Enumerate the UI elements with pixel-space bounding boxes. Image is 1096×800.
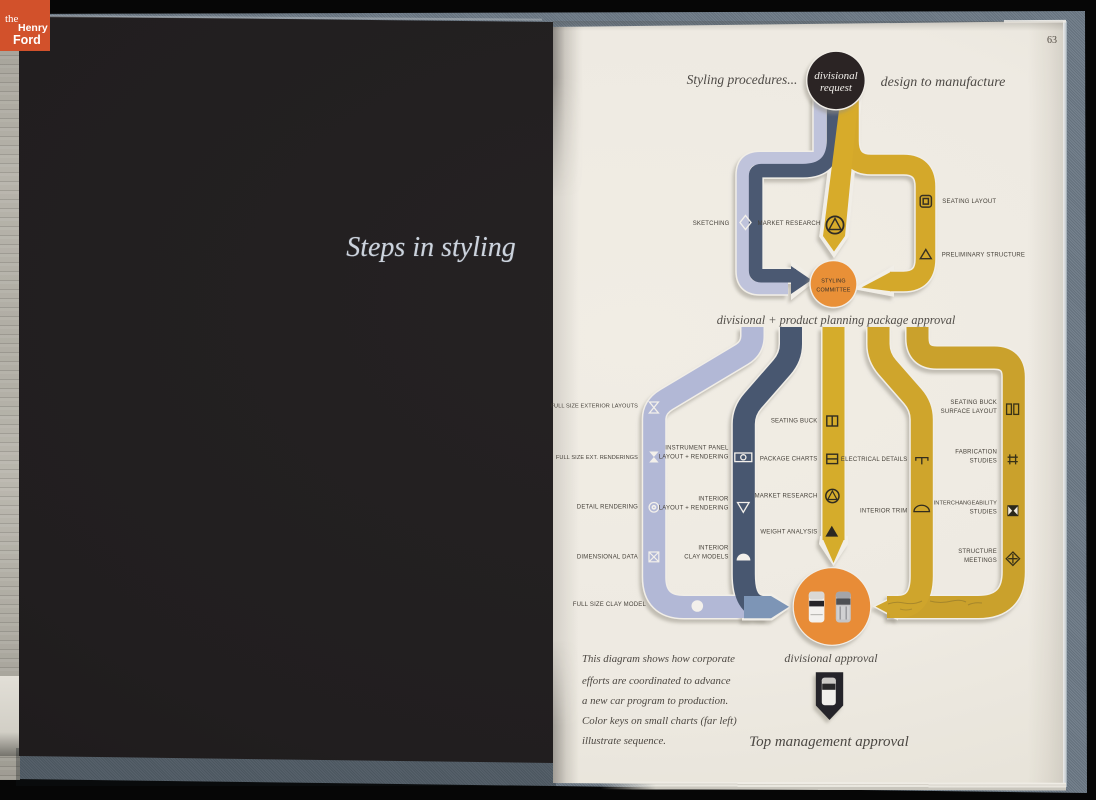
svg-text:divisional approval: divisional approval [784,651,878,665]
svg-text:MEETINGS: MEETINGS [964,558,997,564]
svg-text:a new car program to productio: a new car program to production. [582,695,728,707]
svg-text:STUDIES: STUDIES [970,510,997,516]
svg-text:FULL SIZE CLAY MODEL: FULL SIZE CLAY MODEL [573,602,647,608]
svg-text:Top management approval: Top management approval [749,734,909,750]
svg-text:MARKET RESEARCH: MARKET RESEARCH [758,221,821,227]
svg-text:efforts are coordinated to adv: efforts are coordinated to advance [582,675,731,687]
svg-text:INSTRUMENT PANEL: INSTRUMENT PANEL [665,446,729,452]
svg-text:SEATING BUCK: SEATING BUCK [950,400,997,406]
svg-text:FULL SIZE EXT. RENDERINGS: FULL SIZE EXT. RENDERINGS [556,455,638,461]
svg-text:63: 63 [1047,35,1057,46]
svg-text:STYLING: STYLING [821,279,845,285]
svg-text:INTERIOR: INTERIOR [698,545,729,551]
svg-text:COMMITTEE: COMMITTEE [816,288,850,294]
svg-text:ELECTRICAL DETAILS: ELECTRICAL DETAILS [841,457,908,463]
svg-text:SEATING LAYOUT: SEATING LAYOUT [942,199,996,205]
svg-text:SKETCHING: SKETCHING [693,221,730,227]
svg-text:INTERCHANGEABILITY: INTERCHANGEABILITY [934,501,998,507]
svg-text:STUDIES: STUDIES [970,459,997,465]
svg-text:PRELIMINARY STRUCTURE: PRELIMINARY STRUCTURE [942,253,1025,259]
svg-text:Styling procedures...: Styling procedures... [687,72,798,87]
svg-text:This diagram shows how corpora: This diagram shows how corporate [582,653,735,665]
svg-text:INTERIOR TRIM: INTERIOR TRIM [860,509,908,515]
svg-text:divisional + product planning: divisional + product planning package ap… [717,313,956,327]
svg-text:WEIGHT ANALYSIS: WEIGHT ANALYSIS [760,530,817,536]
svg-text:LAYOUT + RENDERING: LAYOUT + RENDERING [659,455,729,461]
svg-text:illustrate sequence.: illustrate sequence. [582,735,666,747]
svg-text:SEATING BUCK: SEATING BUCK [771,418,818,424]
svg-text:design to manufacture: design to manufacture [881,75,1006,90]
svg-text:DETAIL RENDERING: DETAIL RENDERING [577,505,638,511]
svg-text:SURFACE LAYOUT: SURFACE LAYOUT [941,409,998,415]
svg-text:STRUCTURE: STRUCTURE [958,549,997,555]
svg-text:CLAY MODELS: CLAY MODELS [684,554,728,560]
svg-text:PACKAGE CHARTS: PACKAGE CHARTS [760,457,818,463]
svg-text:Color keys on small charts (fa: Color keys on small charts (far left) [582,715,737,727]
svg-text:request: request [820,82,853,94]
svg-text:INTERIOR: INTERIOR [698,496,729,502]
svg-text:divisional: divisional [814,70,857,82]
svg-text:DIMENSIONAL DATA: DIMENSIONAL DATA [577,554,638,560]
svg-text:LAYOUT + RENDERING: LAYOUT + RENDERING [659,506,729,512]
svg-text:MARKET RESEARCH: MARKET RESEARCH [755,494,818,500]
svg-text:FULL SIZE EXTERIOR LAYOUTS: FULL SIZE EXTERIOR LAYOUTS [551,403,639,409]
svg-text:FABRICATION: FABRICATION [955,450,997,456]
